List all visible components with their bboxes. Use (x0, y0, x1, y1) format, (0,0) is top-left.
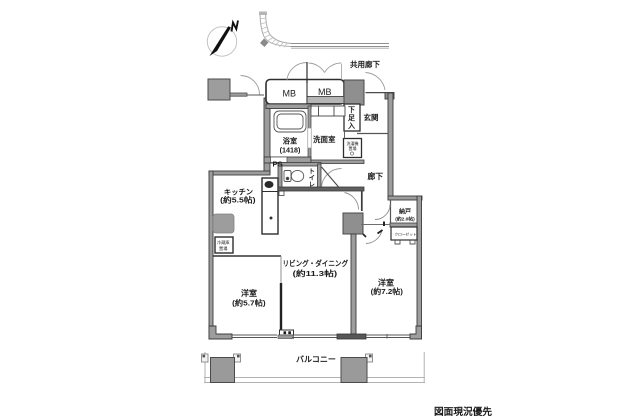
svg-text:置場: 置場 (349, 145, 357, 151)
svg-text:バルコニー: バルコニー (296, 355, 336, 364)
svg-text:入: 入 (347, 122, 355, 130)
svg-text:MB: MB (283, 89, 297, 99)
svg-text:下: 下 (348, 106, 355, 114)
svg-text:PS: PS (273, 160, 283, 169)
svg-text:(約5.7帖): (約5.7帖) (232, 298, 266, 308)
svg-text:置場: 置場 (219, 245, 228, 252)
svg-text:浴室: 浴室 (283, 137, 297, 146)
svg-text:(1418): (1418) (280, 146, 301, 155)
svg-text:(約7.2帖): (約7.2帖) (371, 286, 404, 296)
svg-text:(約5.5帖): (約5.5帖) (220, 195, 256, 204)
svg-text:冷蔵庫: 冷蔵庫 (217, 239, 230, 246)
svg-text:図面現況優先: 図面現況優先 (434, 405, 492, 418)
svg-text:リビング・ダイニング: リビング・ダイニング (283, 258, 349, 268)
svg-text:納戸: 納戸 (399, 208, 411, 216)
svg-text:MB: MB (318, 87, 332, 97)
svg-text:クローゼット: クローゼット (395, 231, 417, 236)
svg-text:共用廊下: 共用廊下 (350, 59, 380, 69)
svg-text:洗面室: 洗面室 (313, 134, 336, 144)
svg-text:玄関: 玄関 (364, 112, 379, 122)
svg-text:(約11.3帖): (約11.3帖) (293, 268, 338, 278)
svg-text:(約2.0帖): (約2.0帖) (395, 216, 415, 223)
svg-text:足: 足 (348, 114, 356, 122)
svg-text:洋室: 洋室 (378, 278, 394, 288)
svg-text:廊下: 廊下 (368, 171, 384, 181)
svg-text:洋室: 洋室 (241, 288, 257, 298)
